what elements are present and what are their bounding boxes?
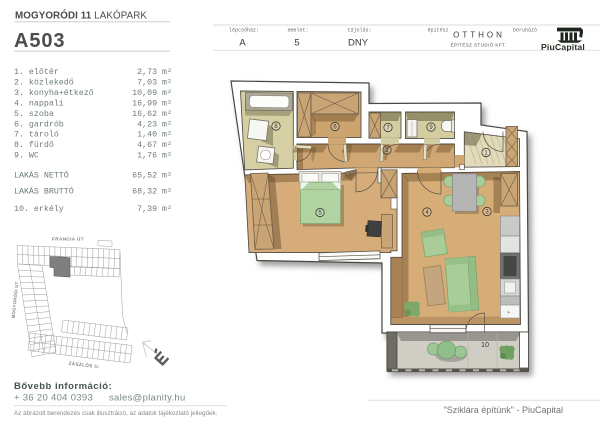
svg-text:tájolás:: tájolás: (347, 28, 371, 34)
svg-text:6. gardrób: 6. gardrób (14, 119, 64, 129)
svg-text:8. fürdő: 8. fürdő (14, 140, 54, 150)
svg-text:DNY: DNY (348, 38, 369, 49)
svg-text:4. nappali: 4. nappali (14, 98, 64, 108)
svg-text:16,62 m²: 16,62 m² (132, 110, 172, 119)
svg-text:sales@planity.hu: sales@planity.hu (109, 393, 186, 404)
svg-text:1. előtér: 1. előtér (14, 67, 59, 77)
svg-text:"Sziklára építünk" - PiuCapita: "Sziklára építünk" - PiuCapital (444, 405, 563, 415)
svg-text:7,03 m²: 7,03 m² (137, 79, 172, 88)
svg-text:4,67 m²: 4,67 m² (137, 141, 172, 150)
svg-text:9. WC: 9. WC (14, 152, 39, 161)
svg-text:4,23 m²: 4,23 m² (137, 120, 172, 129)
svg-text:2. közlekedő: 2. közlekedő (14, 78, 74, 88)
svg-text:16,99 m²: 16,99 m² (132, 99, 172, 108)
svg-text:Bővebb információ:: Bővebb információ: (14, 381, 112, 392)
svg-text:10,09 m²: 10,09 m² (132, 89, 172, 98)
svg-text:A503: A503 (14, 30, 65, 52)
svg-text:LAKÁS BRUTTÓ: LAKÁS BRUTTÓ (14, 186, 74, 197)
svg-text:Az ábrázolt berendezés csak il: Az ábrázolt berendezés csak illusztráció… (14, 410, 218, 417)
svg-text:LAKÁS NETTÓ: LAKÁS NETTÓ (14, 170, 69, 181)
svg-text:10. erkély: 10. erkély (14, 204, 64, 214)
svg-text:+ 36 20 404 0393: + 36 20 404 0393 (14, 393, 93, 404)
svg-text:emelet:: emelet: (287, 28, 308, 34)
svg-text:10: 10 (481, 340, 489, 349)
svg-text:5. szoba: 5. szoba (14, 109, 54, 119)
svg-text:A: A (239, 38, 246, 49)
svg-text:68,32 m²: 68,32 m² (132, 188, 172, 197)
svg-text:beruházó: beruházó (513, 28, 537, 34)
svg-text:5: 5 (294, 38, 299, 49)
svg-text:FRANCIA ÚT: FRANCIA ÚT (52, 236, 84, 242)
svg-text:PiuCapital: PiuCapital (541, 42, 585, 52)
svg-text:építész: építész (427, 28, 448, 34)
svg-text:lépcsőház:: lépcsőház: (229, 28, 259, 34)
svg-text:7. tároló: 7. tároló (14, 130, 59, 140)
svg-text:MOGYORÓDI 11 LAKÓPARK: MOGYORÓDI 11 LAKÓPARK (15, 10, 147, 22)
svg-text:OTTHON: OTTHON (453, 31, 505, 40)
svg-text:1,40 m²: 1,40 m² (137, 131, 172, 140)
svg-text:2,73 m²: 2,73 m² (137, 68, 172, 77)
svg-text:3. konyha+étkező: 3. konyha+étkező (14, 88, 94, 98)
svg-text:ÉPÍTÉSZ STUDIÓ KFT.: ÉPÍTÉSZ STUDIÓ KFT. (451, 42, 507, 47)
svg-text:7,39 m²: 7,39 m² (137, 205, 172, 214)
svg-text:65,52 m²: 65,52 m² (132, 172, 172, 181)
svg-text:1,76 m²: 1,76 m² (137, 152, 172, 161)
